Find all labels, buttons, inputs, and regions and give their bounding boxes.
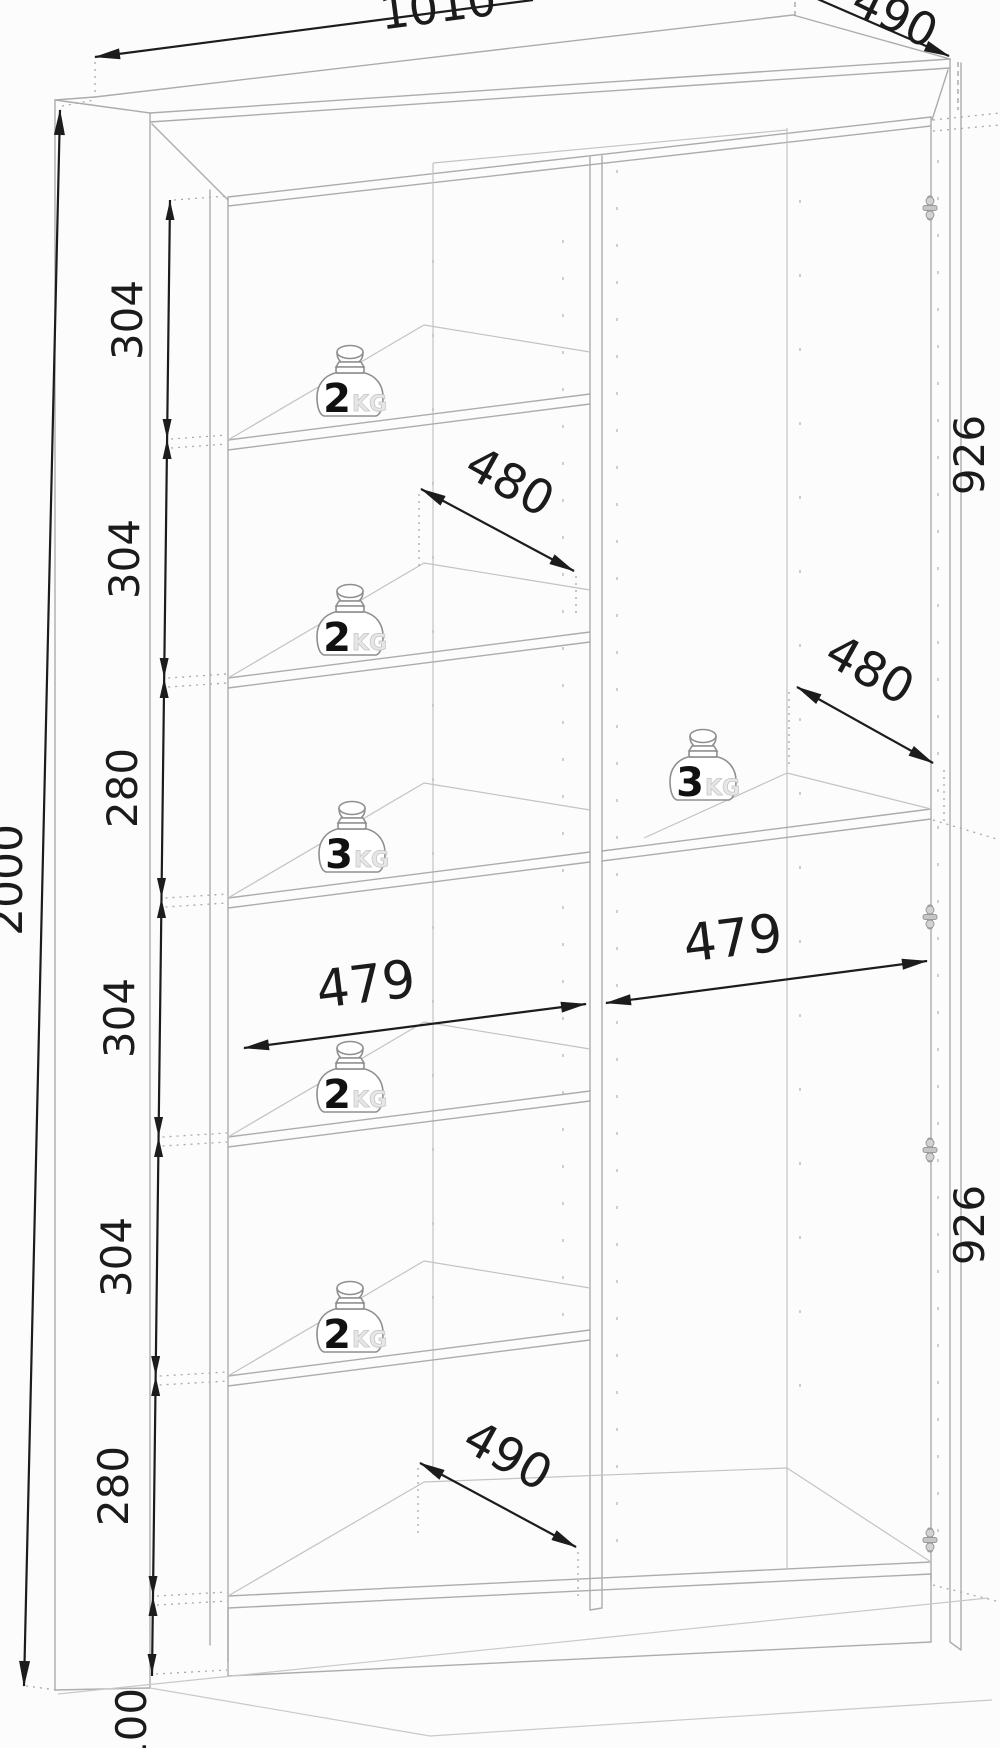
- weight-value: 2: [323, 376, 351, 422]
- hinge-icon: [923, 196, 937, 220]
- fixed-shelf-right: [602, 773, 931, 861]
- dim-section-height: 304: [103, 280, 152, 360]
- dim-shelf-depth-left: 480: [456, 435, 563, 528]
- dim-overall-width: 1010: [376, 0, 499, 41]
- plinth: [58, 1574, 992, 1736]
- dim-section-height: 304: [95, 978, 144, 1058]
- weight-icon: 2KG: [317, 346, 387, 423]
- shelf: [228, 1261, 590, 1386]
- shelf: [228, 1022, 590, 1147]
- dim-door-height-bottom: 926: [945, 1185, 994, 1265]
- weight-unit: KG: [352, 392, 387, 417]
- weight-unit: KG: [352, 1088, 387, 1113]
- dim-section-height: 280: [89, 1446, 138, 1526]
- weight-unit: KG: [352, 631, 387, 656]
- weight-value: 3: [676, 760, 704, 806]
- dim-inner-width-right: 479: [680, 903, 786, 975]
- dim-inner-width-left: 479: [313, 949, 419, 1021]
- dim-shelf-depth-right: 480: [816, 623, 923, 716]
- dim-door-height-top: 926: [945, 415, 994, 495]
- top-front-edge: [150, 59, 950, 113]
- hinge-icon: [923, 1528, 937, 1552]
- weight-icon: 2KG: [317, 585, 387, 662]
- weight-unit: KG: [705, 776, 740, 801]
- shelf: [228, 563, 590, 688]
- weight-icon: 3KG: [319, 802, 389, 879]
- interior-top-edge: [228, 117, 931, 197]
- dim-line-inner-width-right: [606, 961, 927, 1003]
- shelf: [228, 325, 590, 450]
- weight-icon: 2KG: [317, 1042, 387, 1119]
- dim-overall-height: 2000: [0, 824, 33, 936]
- hinge-icon: [923, 1138, 937, 1162]
- dim-line-inner-width-left: [244, 1004, 586, 1048]
- weight-unit: KG: [352, 1328, 387, 1353]
- fixed-shelf-left: [228, 783, 590, 908]
- hinge-icon: [923, 905, 937, 929]
- weight-value: 3: [325, 832, 353, 878]
- dim-overall-depth: 490: [844, 0, 947, 59]
- weight-value: 2: [323, 615, 351, 661]
- weight-value: 2: [323, 1072, 351, 1118]
- dim-plinth-height: 100: [107, 1688, 156, 1748]
- dim-bottom-depth: 490: [454, 1409, 561, 1502]
- dim-section-height: 304: [92, 1217, 141, 1297]
- wardrobe-dimension-drawing: 2KG2KG3KG2KG2KG3KG 1010 490 2000 304 304…: [0, 0, 1000, 1748]
- dim-section-height: 280: [98, 748, 147, 828]
- weight-value: 2: [323, 1312, 351, 1358]
- hinges: [923, 196, 937, 1552]
- height-dimension-chain: [148, 196, 227, 1676]
- weight-unit: KG: [354, 848, 389, 873]
- dim-section-height: 304: [100, 519, 149, 599]
- technical-drawing-canvas: 2KG2KG3KG2KG2KG3KG 1010 490 2000 304 304…: [0, 0, 1000, 1748]
- weight-icon: 2KG: [317, 1282, 387, 1359]
- bottom-panel: [228, 1468, 931, 1608]
- weight-icon: 3KG: [670, 730, 740, 807]
